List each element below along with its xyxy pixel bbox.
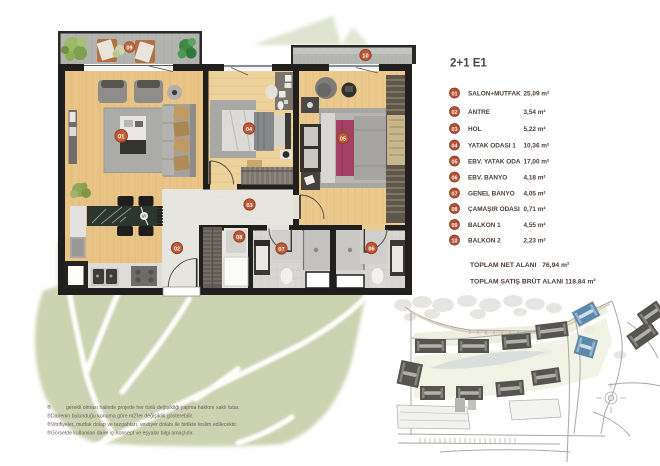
svg-text:05: 05: [452, 159, 458, 165]
svg-text:5,22 m²: 5,22 m²: [524, 126, 546, 133]
svg-text:04: 04: [452, 143, 458, 149]
svg-text:EBV. BANYO: EBV. BANYO: [468, 175, 507, 182]
svg-text:02: 02: [174, 247, 180, 253]
svg-text:0,71 m²: 0,71 m²: [524, 206, 546, 213]
svg-text:TOPLAM NET ALANI 76,94 m²: TOPLAM NET ALANI 76,94 m²: [470, 262, 570, 269]
svg-text:01: 01: [118, 134, 125, 140]
svg-text:gerekli olması halinde projede: gerekli olması halinde projede her türlü…: [66, 405, 240, 411]
svg-text:SALON+MUTFAK: SALON+MUTFAK: [468, 91, 521, 98]
svg-text:®Vitrifiyeler, mutfak dolap ve: ®Vitrifiyeler, mutfak dolap ve tezgahlar…: [47, 421, 237, 428]
svg-text:01: 01: [452, 91, 458, 97]
svg-text:07: 07: [278, 247, 284, 253]
svg-text:06: 06: [368, 247, 374, 253]
svg-text:2+1 E1: 2+1 E1: [450, 58, 487, 70]
svg-text:®Görselde kullanılan daire içi: ®Görselde kullanılan daire içi konsept v…: [47, 430, 194, 437]
svg-text:YATAK ODASI 1: YATAK ODASI 1: [468, 143, 516, 150]
svg-text:2,23 m²: 2,23 m²: [524, 238, 546, 245]
svg-text:ÇAMAŞIR ODASI: ÇAMAŞIR ODASI: [468, 206, 520, 213]
svg-text:3,54 m²: 3,54 m²: [524, 109, 546, 116]
svg-text:25,09 m²: 25,09 m²: [524, 91, 550, 98]
svg-text:06: 06: [452, 175, 458, 181]
svg-text:4,55 m²: 4,55 m²: [524, 222, 546, 229]
svg-text:08: 08: [236, 235, 242, 241]
svg-text:04: 04: [246, 127, 253, 133]
svg-text:10,36 m²: 10,36 m²: [524, 143, 550, 150]
svg-text:08: 08: [452, 207, 458, 213]
svg-text:09: 09: [452, 223, 458, 229]
svg-text:4,18 m²: 4,18 m²: [524, 175, 546, 182]
svg-text:09: 09: [127, 45, 133, 51]
svg-text:BALKON 1: BALKON 1: [468, 222, 501, 229]
svg-text:03: 03: [452, 127, 458, 133]
svg-text:4,05 m²: 4,05 m²: [524, 191, 546, 198]
svg-text:TOPLAM SATIŞ BRÜT ALANI 118,: TOPLAM SATIŞ BRÜT ALANI 118,84 m²: [470, 277, 596, 286]
svg-text:02: 02: [452, 110, 458, 116]
svg-text:HOL: HOL: [468, 126, 482, 133]
svg-text:®: ®: [47, 404, 51, 411]
svg-text:BALKON 2: BALKON 2: [468, 238, 501, 245]
svg-text:®Dairenin bulunduğu konuma gör: ®Dairenin bulunduğu konuma göre m2'ler d…: [47, 413, 193, 420]
svg-text:05: 05: [340, 137, 346, 143]
svg-text:03: 03: [246, 203, 252, 209]
svg-text:10: 10: [362, 54, 368, 60]
svg-text:GENEL BANYO: GENEL BANYO: [468, 191, 515, 198]
svg-text:EBV. YATAK ODA: EBV. YATAK ODA: [468, 159, 521, 166]
svg-text:ANTRE: ANTRE: [468, 109, 491, 116]
svg-text:07: 07: [452, 191, 458, 197]
svg-text:10: 10: [452, 238, 458, 244]
svg-text:17,00 m²: 17,00 m²: [524, 159, 550, 166]
